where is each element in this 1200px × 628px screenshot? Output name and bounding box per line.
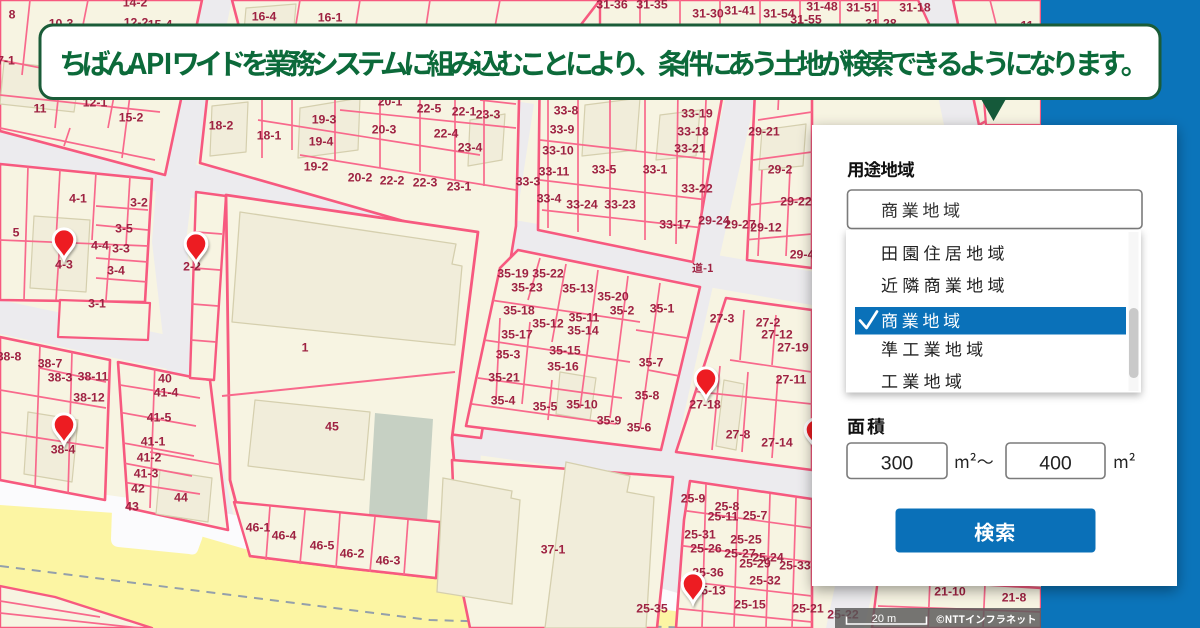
svg-text:4-4: 4-4 <box>91 238 109 252</box>
svg-text:16-4: 16-4 <box>252 9 277 23</box>
svg-text:7-1: 7-1 <box>0 53 15 67</box>
svg-text:25-32: 25-32 <box>749 573 781 587</box>
svg-text:19-3: 19-3 <box>312 112 337 126</box>
svg-text:41-3: 41-3 <box>134 466 159 480</box>
svg-text:46-4: 46-4 <box>272 528 297 542</box>
svg-text:35-11: 35-11 <box>569 310 600 324</box>
svg-text:44: 44 <box>174 490 188 504</box>
svg-text:25-33: 25-33 <box>779 558 811 572</box>
svg-text:19-4: 19-4 <box>309 134 334 148</box>
svg-text:35-7: 35-7 <box>639 355 664 369</box>
svg-text:22-1: 22-1 <box>452 104 477 118</box>
svg-text:41-5: 41-5 <box>147 410 172 424</box>
svg-text:46-1: 46-1 <box>246 520 271 534</box>
svg-text:43: 43 <box>125 499 139 513</box>
svg-text:29-12: 29-12 <box>750 220 782 234</box>
svg-text:19-2: 19-2 <box>304 159 329 173</box>
svg-text:21-8: 21-8 <box>1002 590 1027 604</box>
svg-text:35-5: 35-5 <box>533 399 558 413</box>
svg-text:40: 40 <box>158 371 172 385</box>
svg-text:25-15: 25-15 <box>734 597 766 611</box>
svg-text:27-11: 27-11 <box>776 372 807 386</box>
svg-text:35-15: 35-15 <box>549 343 581 357</box>
svg-text:35-19: 35-19 <box>497 266 529 280</box>
svg-text:33-11: 33-11 <box>539 164 570 178</box>
svg-text:16-1: 16-1 <box>318 10 343 24</box>
svg-text:46-2: 46-2 <box>340 546 365 560</box>
svg-text:41-1: 41-1 <box>141 434 166 448</box>
svg-text:3-2: 3-2 <box>130 195 148 209</box>
svg-text:300: 300 <box>881 453 914 475</box>
svg-text:41-4: 41-4 <box>154 385 179 399</box>
svg-text:22-3: 22-3 <box>413 175 438 189</box>
svg-text:29-2: 29-2 <box>768 162 793 176</box>
svg-text:4-1: 4-1 <box>69 191 87 205</box>
svg-text:25-25: 25-25 <box>730 532 762 546</box>
svg-text:25-31: 25-31 <box>684 527 716 541</box>
svg-text:35-12: 35-12 <box>532 316 564 330</box>
svg-text:35-18: 35-18 <box>503 303 535 317</box>
svg-text:46-5: 46-5 <box>310 538 335 552</box>
svg-text:33-23: 33-23 <box>604 197 636 211</box>
svg-text:25-29: 25-29 <box>739 556 771 570</box>
svg-text:15-2: 15-2 <box>119 110 144 124</box>
svg-text:25-9: 25-9 <box>681 491 706 505</box>
svg-text:3-5: 3-5 <box>115 221 133 235</box>
svg-text:3-3: 3-3 <box>112 241 130 255</box>
svg-text:21-10: 21-10 <box>934 584 966 598</box>
svg-text:35-20: 35-20 <box>597 289 629 303</box>
svg-text:37-1: 37-1 <box>541 542 566 556</box>
svg-text:38-8: 38-8 <box>0 349 21 363</box>
svg-text:33-9: 33-9 <box>550 122 575 136</box>
svg-text:35-14: 35-14 <box>567 323 599 337</box>
svg-text:20-2: 20-2 <box>348 170 373 184</box>
svg-text:42: 42 <box>131 481 145 495</box>
svg-text:33-3: 33-3 <box>516 174 541 188</box>
svg-text:38-11: 38-11 <box>78 369 109 383</box>
svg-text:11: 11 <box>34 101 47 115</box>
svg-text:33-1: 33-1 <box>643 162 668 176</box>
svg-text:22-2: 22-2 <box>380 173 405 187</box>
svg-text:35-9: 35-9 <box>597 413 622 427</box>
svg-text:3-1: 3-1 <box>88 296 106 310</box>
svg-text:27-8: 27-8 <box>726 427 751 441</box>
svg-text:35-21: 35-21 <box>488 370 520 384</box>
svg-text:29-21: 29-21 <box>748 124 780 138</box>
svg-text:8: 8 <box>9 7 16 21</box>
svg-text:35-3: 35-3 <box>496 347 521 361</box>
svg-text:27-19: 27-19 <box>777 340 809 354</box>
svg-text:33-10: 33-10 <box>542 143 574 157</box>
svg-text:33-19: 33-19 <box>681 106 713 120</box>
svg-text:25-21: 25-21 <box>792 601 824 615</box>
svg-text:31-51: 31-51 <box>846 0 878 14</box>
svg-text:25-35: 25-35 <box>636 601 668 615</box>
svg-text:31-36: 31-36 <box>596 0 628 11</box>
svg-text:31-41: 31-41 <box>724 3 756 17</box>
svg-text:1: 1 <box>302 340 309 354</box>
svg-text:25-7: 25-7 <box>743 508 768 522</box>
svg-text:22-4: 22-4 <box>434 126 459 140</box>
svg-text:400: 400 <box>1039 453 1072 475</box>
svg-text:45: 45 <box>325 419 339 433</box>
svg-text:5: 5 <box>13 225 20 239</box>
svg-text:33-4: 33-4 <box>537 191 562 205</box>
svg-text:27-12: 27-12 <box>761 327 793 341</box>
svg-text:23-3: 23-3 <box>476 107 501 121</box>
svg-text:41-2: 41-2 <box>137 450 162 464</box>
svg-text:31-30: 31-30 <box>692 6 724 20</box>
svg-text:35-2: 35-2 <box>610 303 635 317</box>
svg-text:35-23: 35-23 <box>511 280 543 294</box>
svg-text:33-17: 33-17 <box>659 217 691 231</box>
svg-text:20 m: 20 m <box>872 613 896 625</box>
svg-text:29-22: 29-22 <box>780 194 812 208</box>
svg-text:33-21: 33-21 <box>674 141 706 155</box>
svg-text:31-18: 31-18 <box>899 0 931 14</box>
svg-text:25-11: 25-11 <box>708 509 739 523</box>
svg-text:33-24: 33-24 <box>566 197 598 211</box>
svg-text:20-3: 20-3 <box>372 122 397 136</box>
svg-text:14-2: 14-2 <box>123 0 148 9</box>
svg-text:35-17: 35-17 <box>501 327 533 341</box>
svg-text:38-7: 38-7 <box>38 356 63 370</box>
svg-text:27-14: 27-14 <box>761 435 793 449</box>
svg-text:35-8: 35-8 <box>635 388 660 402</box>
svg-text:31-48: 31-48 <box>806 0 838 13</box>
svg-text:23-1: 23-1 <box>447 179 472 193</box>
svg-text:35-22: 35-22 <box>532 266 564 280</box>
svg-text:35-16: 35-16 <box>547 359 579 373</box>
svg-text:38-12: 38-12 <box>73 390 105 404</box>
svg-text:33-8: 33-8 <box>554 103 579 117</box>
svg-text:23-4: 23-4 <box>458 140 483 154</box>
svg-text:31-35: 31-35 <box>636 0 668 11</box>
svg-text:35-1: 35-1 <box>650 301 675 315</box>
svg-text:33-18: 33-18 <box>677 124 709 138</box>
svg-text:46-3: 46-3 <box>376 553 401 567</box>
svg-text:3-4: 3-4 <box>107 263 125 277</box>
svg-text:35-4: 35-4 <box>491 393 516 407</box>
svg-text:22-5: 22-5 <box>417 101 442 115</box>
svg-text:33-5: 33-5 <box>592 162 617 176</box>
svg-text:18-2: 18-2 <box>209 118 234 132</box>
svg-text:35-10: 35-10 <box>566 397 598 411</box>
svg-text:27-3: 27-3 <box>710 311 735 325</box>
svg-text:33-22: 33-22 <box>681 181 713 195</box>
svg-text:18-1: 18-1 <box>257 128 282 142</box>
svg-text:35-6: 35-6 <box>627 420 652 434</box>
svg-text:25-26: 25-26 <box>690 541 722 555</box>
svg-text:35-13: 35-13 <box>562 281 594 295</box>
svg-text:38-3: 38-3 <box>48 370 73 384</box>
svg-text:29-4: 29-4 <box>790 247 815 261</box>
